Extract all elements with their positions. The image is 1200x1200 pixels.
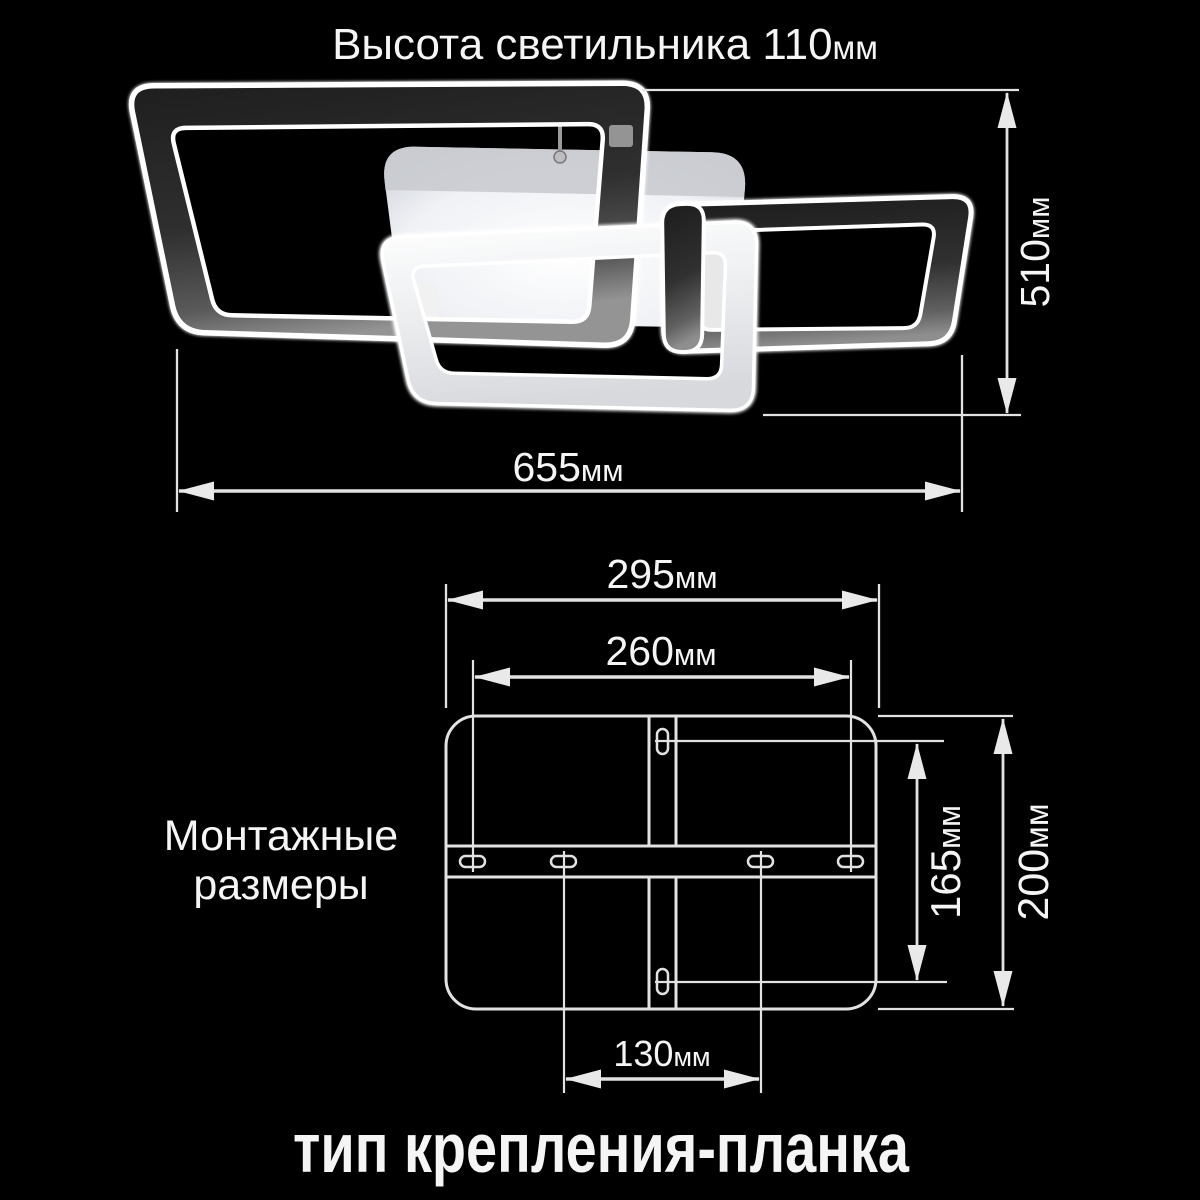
svg-text:Монтажные: Монтажные: [164, 812, 398, 860]
svg-text:200мм: 200мм: [1010, 803, 1058, 920]
svg-text:тип крепления-планка: тип крепления-планка: [293, 1109, 910, 1187]
svg-text:размеры: размеры: [193, 861, 368, 909]
svg-text:Высота светильника 110мм: Высота светильника 110мм: [332, 20, 878, 69]
